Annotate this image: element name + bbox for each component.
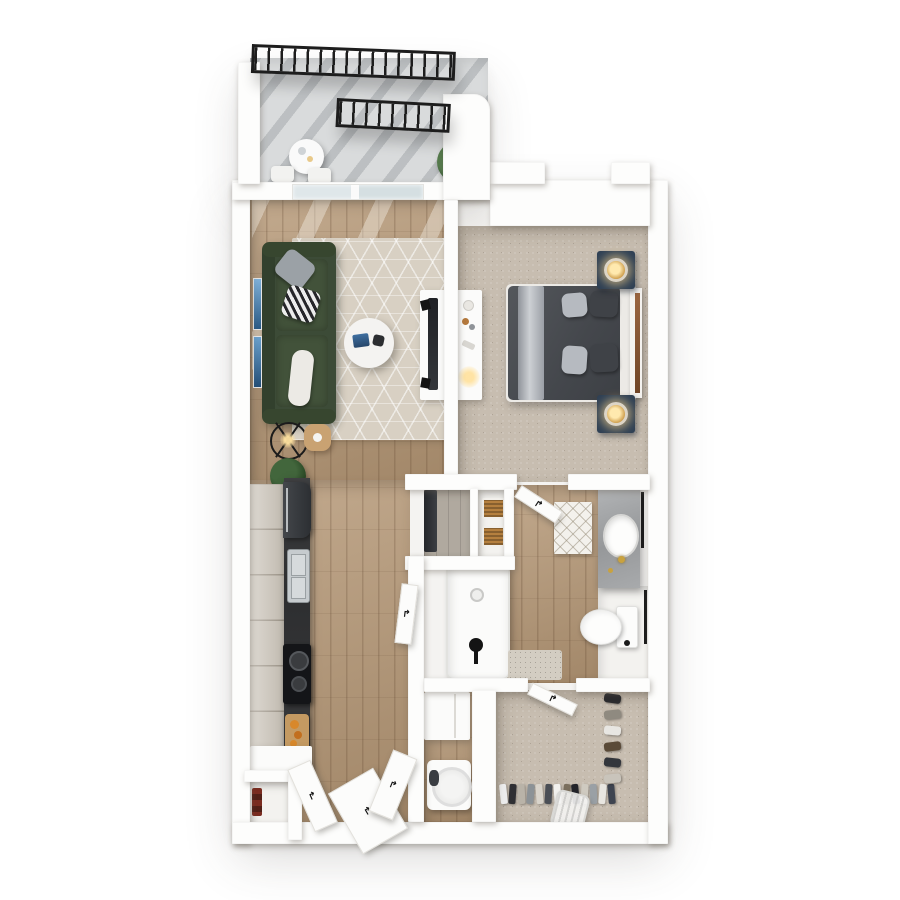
- bath-block-top-wall: [568, 474, 650, 490]
- toilet: [580, 606, 636, 646]
- shoe-pair: [604, 773, 622, 783]
- linen-basket: [482, 526, 505, 547]
- desk-decor: [463, 300, 474, 311]
- clothes-item: [508, 784, 516, 804]
- door-swing-arrow-icon: ↱: [306, 789, 318, 802]
- washer: [427, 760, 471, 810]
- clothes-item: [589, 784, 597, 804]
- wall-art-frame: [253, 278, 262, 330]
- side-table: [304, 424, 331, 451]
- entry-closet-boxes: [252, 788, 262, 816]
- door-swing-arrow-icon: ↱: [387, 778, 399, 791]
- sliding-glass-door: [292, 184, 424, 200]
- vanity: [598, 484, 640, 588]
- clothes-item: [544, 784, 552, 804]
- shower-tile: [508, 650, 562, 680]
- kitchen-sink: [287, 549, 310, 603]
- floor-lamp: [270, 422, 308, 460]
- outer-wall-left: [232, 180, 250, 844]
- cooktop: [283, 644, 311, 704]
- bed: [506, 284, 636, 402]
- linen-right-wall: [504, 488, 514, 558]
- table-decor: [307, 156, 313, 162]
- shoe-pair: [604, 709, 622, 720]
- bed-pillow-dark: [589, 343, 618, 372]
- nightstand: [597, 395, 635, 433]
- clothes-item: [526, 784, 535, 805]
- sink-basin: [291, 577, 306, 599]
- tv-screen: [428, 298, 438, 390]
- door-swing-arrow-icon: ↱: [402, 608, 412, 620]
- bed-pillow-dark: [589, 290, 618, 317]
- headboard-wood-accent: [635, 293, 640, 393]
- bath-closet-wall: [576, 678, 650, 692]
- shoe-pair: [604, 741, 622, 752]
- desk-decor: [462, 318, 469, 325]
- shoe-pair: [604, 725, 622, 735]
- kitchen-cabinets: [250, 484, 286, 756]
- floor-plan: ↱ ↱ ↱ ↱ ↱ ↱: [0, 0, 900, 900]
- nightstand: [597, 251, 635, 289]
- lamp-bulb: [280, 432, 296, 448]
- headboard: [630, 288, 642, 398]
- nightstand-lamp: [604, 402, 628, 426]
- table-decor: [298, 147, 306, 155]
- desk-decor: [469, 324, 475, 330]
- towel-bar: [644, 590, 647, 644]
- books: [352, 333, 370, 348]
- utility-linen-divider: [470, 488, 478, 558]
- balcony-side-wall-left: [238, 62, 260, 184]
- wall-art-frame: [253, 336, 262, 388]
- food-item: [294, 731, 302, 739]
- outer-wall-right: [648, 180, 668, 844]
- living-bedroom-partition: [444, 200, 458, 482]
- food-item: [290, 720, 299, 729]
- door-swing-arrow-icon: ↱: [546, 693, 558, 707]
- bed-pillow-gray: [561, 345, 588, 375]
- refrigerator: [283, 482, 311, 538]
- bedroom-top-wall: [490, 180, 650, 226]
- linen-basket: [482, 498, 505, 519]
- cabinet-seam: [454, 694, 456, 738]
- bed-pillow-gray: [561, 292, 588, 318]
- bedroom-top-wall-tab: [490, 162, 545, 184]
- tub-drain: [470, 588, 484, 602]
- sofa: [262, 242, 336, 424]
- bedroom-top-wall-tab: [611, 162, 650, 184]
- towel-bar: [641, 492, 644, 548]
- flush-button: [624, 640, 630, 646]
- burner: [289, 651, 309, 671]
- toilet-bowl: [580, 609, 622, 645]
- decor-bowl: [372, 334, 385, 347]
- fridge-handle: [286, 488, 288, 532]
- shoe-pair: [604, 757, 622, 768]
- burner: [291, 676, 307, 692]
- bathtub: [446, 564, 510, 680]
- bath-block-top-wall: [405, 474, 517, 490]
- vanity-accessory: [608, 568, 613, 573]
- throw-blanket: [518, 286, 544, 400]
- vanity-faucet: [618, 556, 625, 563]
- sink-basin: [291, 554, 306, 576]
- laundry-closet-wall: [472, 690, 496, 822]
- speaker: [420, 377, 431, 388]
- laundry-cabinet: [424, 692, 470, 740]
- door-swing-arrow-icon: ↱: [532, 497, 545, 511]
- desk-lamp: [458, 366, 480, 388]
- vanity-sink: [603, 514, 639, 558]
- bedroom-desk: [456, 290, 482, 400]
- sofa-back: [262, 242, 275, 424]
- balcony-chair: [271, 166, 294, 182]
- clothes-item: [499, 784, 508, 805]
- clothes-item: [535, 784, 544, 805]
- shoe-pair: [603, 693, 621, 704]
- balcony-railing-inner: [335, 98, 450, 133]
- utility-appliance: [424, 490, 437, 552]
- shoe-shelf: [604, 694, 624, 794]
- laundry-items: [429, 770, 439, 786]
- nightstand-lamp: [604, 258, 628, 282]
- mug: [313, 433, 322, 442]
- coffee-table: [344, 318, 394, 368]
- tub-faucet-head: [469, 638, 483, 652]
- clothes-item: [517, 784, 525, 804]
- desk-tray: [461, 340, 475, 351]
